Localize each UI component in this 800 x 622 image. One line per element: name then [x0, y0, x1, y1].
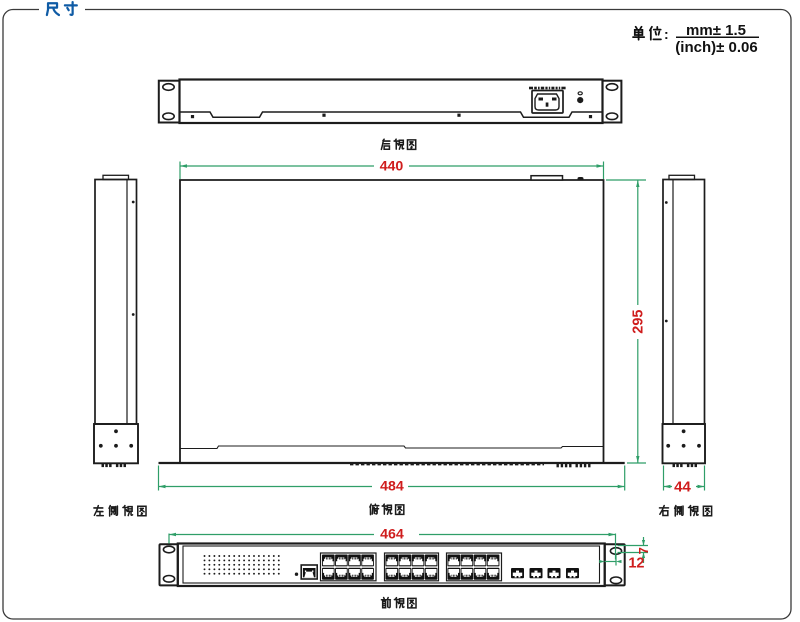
- svg-text:440: 440: [380, 159, 404, 175]
- svg-text::: :: [664, 26, 669, 42]
- svg-text:12: 12: [628, 556, 644, 572]
- svg-text:mm± 1.5: mm± 1.5: [686, 22, 746, 39]
- svg-text:484: 484: [380, 479, 404, 495]
- svg-text:464: 464: [380, 527, 404, 543]
- svg-text:295: 295: [631, 309, 647, 333]
- svg-text:44: 44: [674, 478, 691, 495]
- svg-text:7: 7: [636, 547, 651, 554]
- svg-text:(inch)± 0.06: (inch)± 0.06: [675, 39, 757, 56]
